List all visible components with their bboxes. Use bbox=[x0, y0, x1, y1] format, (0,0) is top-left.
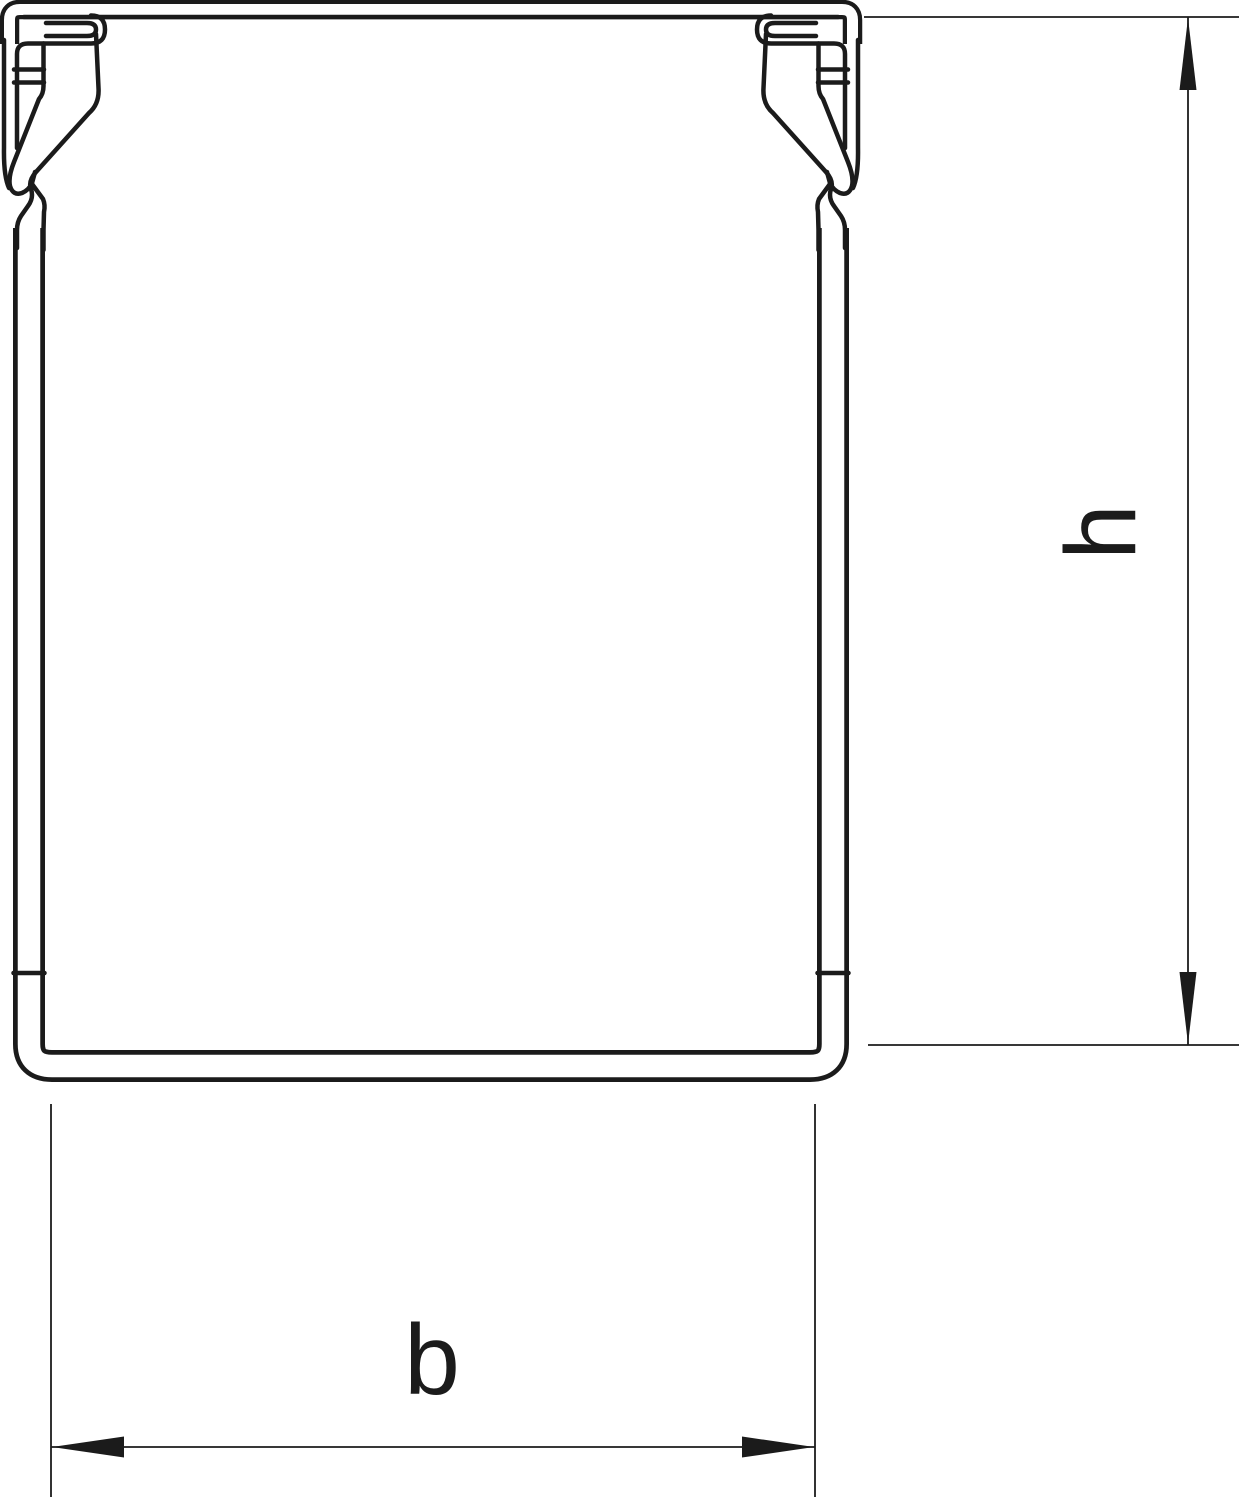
dimension-label-h: h bbox=[1051, 482, 1151, 582]
b-arrowhead-right bbox=[742, 1437, 814, 1458]
duct-u-body-outline bbox=[29, 228, 833, 1066]
h-arrowhead-up bbox=[1180, 18, 1197, 90]
cable-duct-profile-drawing bbox=[0, 0, 1241, 1500]
dimension-label-b: b bbox=[382, 1310, 482, 1410]
duct-cover-core bbox=[10, 10, 853, 45]
technical-drawing-canvas: h b bbox=[0, 0, 1241, 1500]
duct-body bbox=[10, 10, 853, 1067]
dimension-annotations bbox=[51, 17, 1239, 1497]
h-arrowhead-down bbox=[1180, 972, 1197, 1044]
dimension-b bbox=[51, 1104, 815, 1497]
b-arrowhead-left bbox=[52, 1437, 124, 1458]
duct-profile-lines bbox=[4, 16, 858, 974]
left-clip bbox=[4, 16, 105, 251]
right-clip bbox=[757, 16, 858, 251]
duct-u-body-core bbox=[29, 228, 833, 1066]
